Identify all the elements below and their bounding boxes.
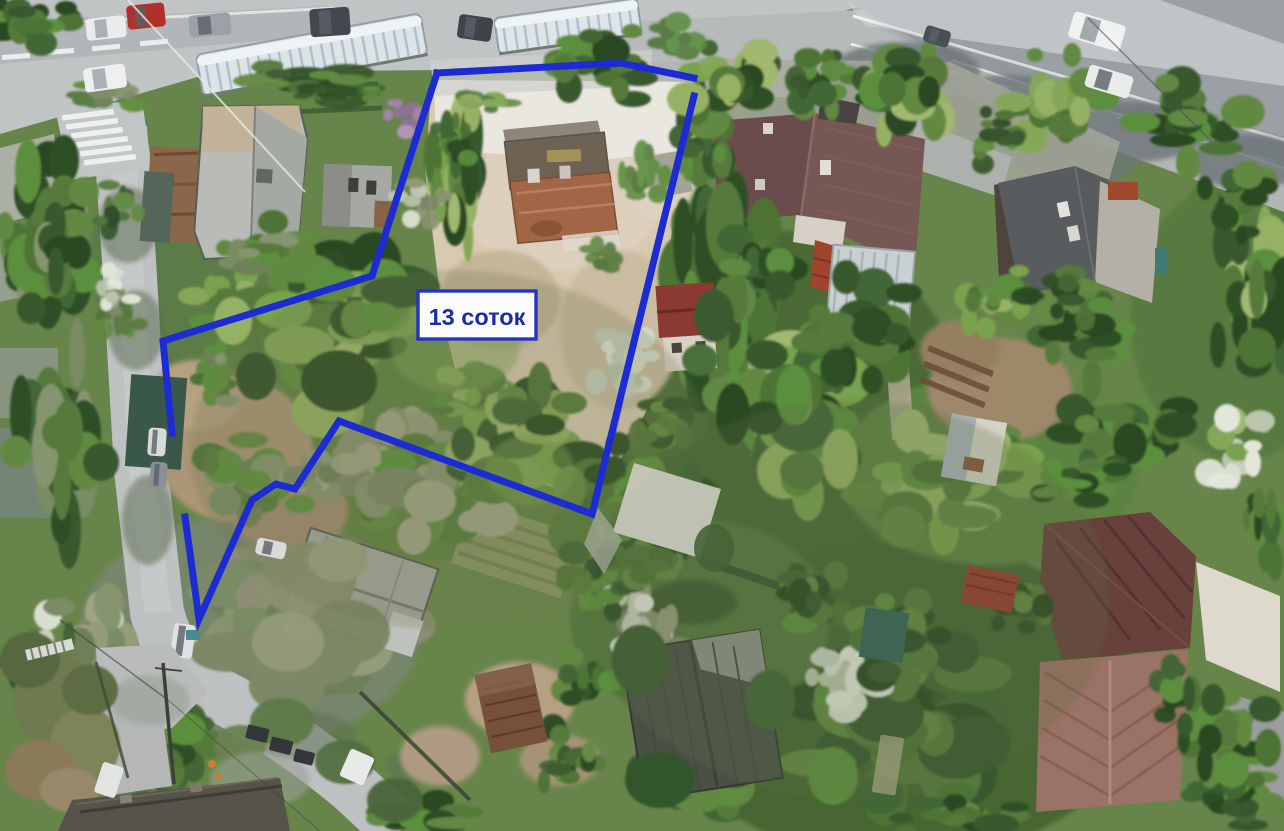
svg-text:13 соток: 13 соток bbox=[429, 304, 526, 330]
